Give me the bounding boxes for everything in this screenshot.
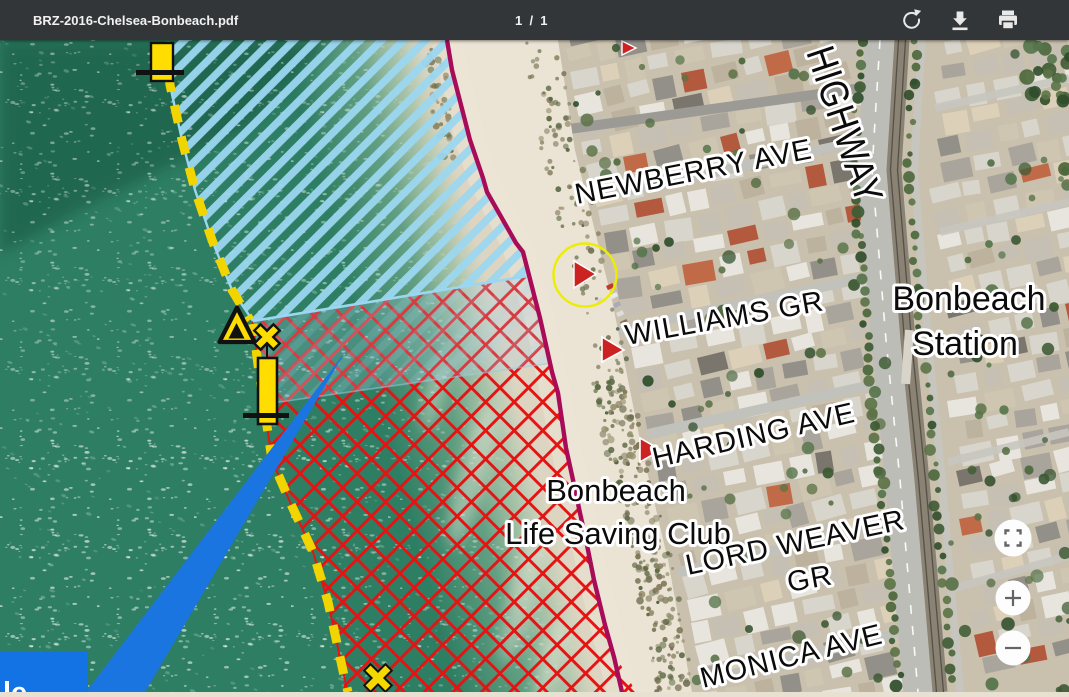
svg-text:Bonbeach: Bonbeach [892, 280, 1045, 318]
svg-text:le: le [3, 677, 27, 692]
svg-text:Life Saving Club: Life Saving Club [505, 516, 731, 551]
svg-text:Station: Station [912, 325, 1018, 363]
svg-text:Bonbeach: Bonbeach [546, 473, 686, 508]
